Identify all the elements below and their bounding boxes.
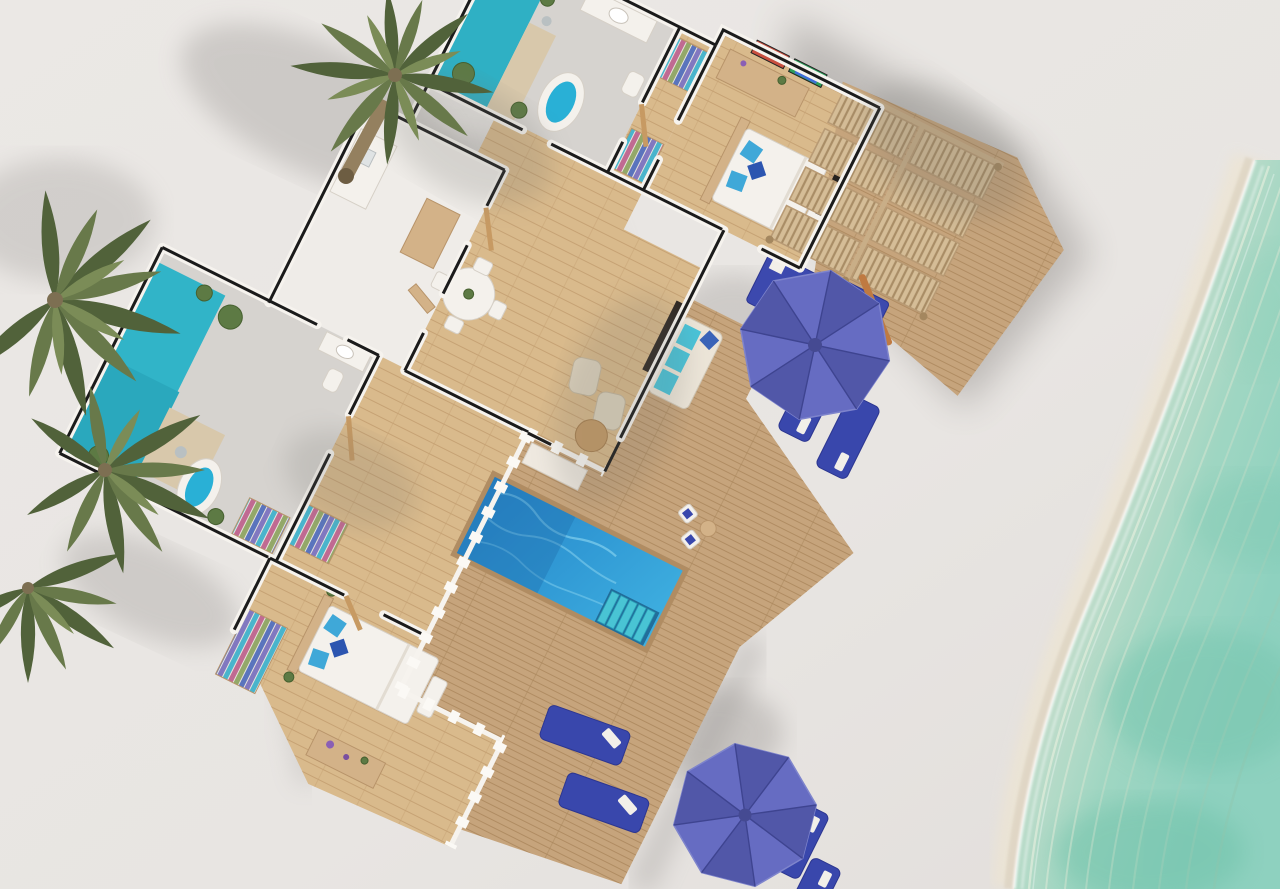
floorplan-render: [0, 0, 1280, 889]
villa-aerial-scene: [0, 0, 1280, 889]
palm-root: [338, 168, 354, 184]
